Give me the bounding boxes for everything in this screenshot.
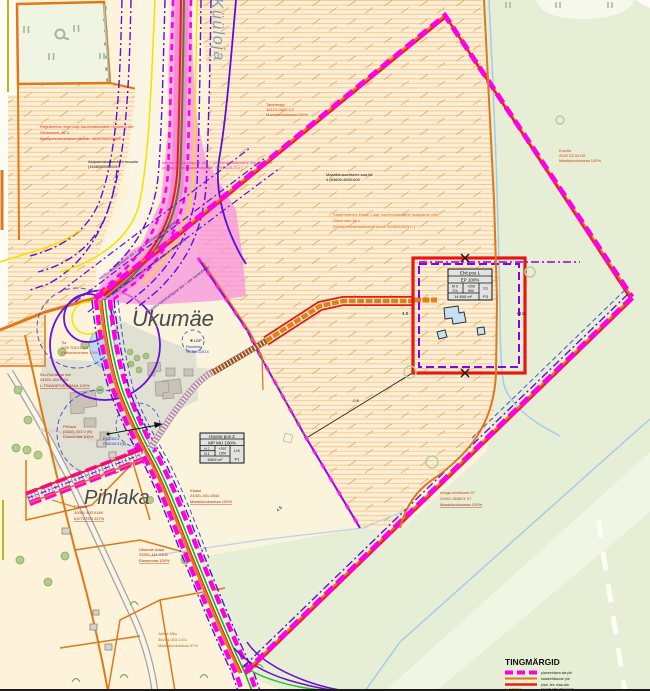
svg-text:Maaqvesvavustatsendksadr: 4406: Maaqvesvavustatsendksadr: 4406700229604 — [40, 136, 122, 141]
svg-text:ILETVTEB 227%: ILETVTEB 227% — [74, 516, 105, 521]
svg-text:29901-363621 97: 29901-363621 97 — [440, 496, 472, 501]
svg-text:H 7: H 7 — [204, 447, 210, 451]
svg-text:-0.8: -0.8 — [352, 398, 360, 403]
svg-text:R0605131(6): R0605131(6) — [103, 441, 127, 446]
svg-text:N 1: N 1 — [204, 452, 210, 456]
svg-text:Hoone pos 2: Hoone pos 2 — [209, 434, 235, 439]
svg-text:MP MU 100%: MP MU 100% — [208, 441, 236, 446]
svg-text:Sademetevee kraav, t üap: kave: Sademetevee kraav, t üap: kavendatavatel… — [333, 212, 438, 217]
svg-text:TINGMÄRGID: TINGMÄRGID — [505, 657, 560, 667]
svg-text:Maatulundusmaa 100%: Maatulundusmaa 100% — [190, 499, 232, 504]
svg-text:Iehiga metskond 97: Iehiga metskond 97 — [440, 490, 476, 495]
svg-text:(1166000000001: (1166000000001 — [88, 164, 119, 169]
svg-text:15%: 15% — [219, 452, 227, 456]
svg-text:23301-111-0406: 23301-111-0406 — [139, 552, 169, 557]
svg-text:36204-003-1411: 36204-003-1411 — [158, 637, 188, 642]
svg-text:500: 500 — [468, 289, 474, 293]
svg-text:24301-401-0044: 24301-401-0044 — [190, 493, 220, 498]
svg-text:Pihlaka: Pihlaka — [84, 487, 150, 509]
svg-text:14 800 m²: 14 800 m² — [454, 294, 473, 299]
svg-text:Maatulundusmaa 100%: Maatulundusmaa 100% — [559, 158, 601, 163]
svg-text:1/1: 1/1 — [483, 287, 488, 291]
svg-text:Ohutusvee: 61 u: Ohutusvee: 61 u — [40, 130, 69, 135]
svg-text:◾LDP: ◾LDP — [189, 338, 202, 343]
svg-text:Maatulundusmaa 100%: Maatulundusmaa 100% — [440, 502, 482, 507]
svg-text:Reguleeriva rings üap: kavanda: Reguleeriva rings üap: kavandatavatele r… — [40, 124, 134, 129]
svg-text:20001.400.0184: 20001.400.0184 — [74, 510, 104, 515]
svg-text:P3: P3 — [483, 294, 489, 299]
svg-text:Dielank: Dielank — [74, 504, 87, 509]
svg-text:Jutike-Nitu: Jutike-Nitu — [158, 631, 177, 636]
svg-text:EP 100%: EP 100% — [461, 278, 480, 283]
svg-text:Maatulundusmaa 97%: Maatulundusmaa 97% — [158, 643, 198, 648]
svg-text:Ohtut vee: 60 u: Ohtut vee: 60 u — [333, 218, 360, 223]
svg-text:6305 m²: 6305 m² — [208, 457, 223, 462]
svg-text:plan. tee maa-ala: plan. tee maa-ala — [541, 683, 569, 687]
svg-text:4.0: 4.0 — [402, 311, 409, 316]
svg-text:Ukumäe: Ukumäe — [132, 306, 214, 331]
svg-text:Maatulundusmaa 100%: Maatulundusmaa 100% — [266, 112, 308, 117]
svg-text:planeeritava ala piir: planeeritava ala piir — [541, 671, 573, 675]
svg-text:Küüloja: Küüloja — [208, 0, 227, 62]
svg-text:(Betsevkvemes 10%: (Betsevkvemes 10% — [61, 350, 98, 355]
svg-text:24301-404+204: 24301-404+204 — [40, 377, 69, 382]
svg-text:+4.0: +4.0 — [516, 311, 525, 316]
svg-text:katastriüksuse piir: katastriüksuse piir — [541, 677, 571, 681]
svg-text:Elamumaa 100%: Elamumaa 100% — [139, 558, 170, 563]
svg-text:Elamumaa 100%: Elamumaa 100% — [63, 434, 94, 439]
svg-text:(Maaqvesvavustatsendi kood: 41: (Maaqvesvavustatsendi kood: 4106932629 u… — [333, 224, 416, 229]
svg-text:HKRES2014: HKRES2014 — [186, 349, 209, 354]
svg-text:(maaqvesvavustatsendksadr: 4V0: (maaqvesvavustatsendksadr: 4V06510L/3 u … — [162, 165, 243, 170]
svg-text:P1: P1 — [235, 457, 241, 462]
svg-text:+297: +297 — [218, 447, 226, 451]
svg-text:2%: 2% — [452, 289, 458, 293]
svg-text:L-TRANSPORDIMAA 100%: L-TRANSPORDIMAA 100% — [40, 383, 90, 388]
svg-text:Ehit pos 1: Ehit pos 1 — [460, 271, 481, 276]
svg-text:U:K: U:K — [234, 449, 241, 453]
svg-text:4 (63600-4600:000: 4 (63600-4600:000 — [326, 177, 361, 182]
